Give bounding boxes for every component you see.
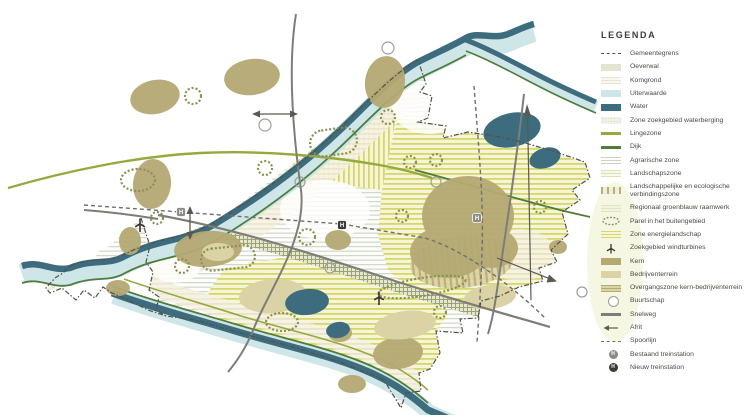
afrit-icon [601,324,621,332]
parel-buitengebied-icon [601,216,621,226]
zoekgebied-windturbines-swatch [601,245,621,252]
wind-turbine-icon [601,243,621,254]
zone-zoekgebied-waterberging-swatch [601,117,621,124]
bestaand-treinstation-icon: H [609,350,618,359]
legend-label: Bedrijventerrein [630,271,678,279]
legend-label: Dijk [630,143,641,151]
legend-label: Uiterwaarde [630,90,667,98]
snelweg-swatch [601,311,621,318]
uiterwaarde-swatch [601,90,621,97]
legend-label: Nieuw treinstation [630,364,684,372]
zone-energielandschap-swatch [601,231,621,238]
legend-label: Overgangszone kern-bedrijventerrein [630,284,742,292]
legend-item-afrit: Afrit [601,324,749,332]
bedrijventerrein-swatch [601,271,621,278]
legend-title: LEGENDA [601,30,749,40]
legend-item-bestaand-treinstation: HBestaand treinstation [601,351,749,359]
legend-item-landschapszone: Landschapszone [601,170,749,178]
dijk-swatch [601,144,621,151]
legend-item-water: Water [601,103,749,111]
legend-label: Komgrond [630,77,661,85]
legend-item-overgangszone-kern-bedrijventerrein: Overgangszone kern-bedrijventerrein [601,284,749,292]
svg-text:H: H [475,216,479,222]
legend-panel: LEGENDA GemeentegrensOeverwalKomgrondUit… [601,30,749,377]
legend-label: Snelweg [630,311,656,319]
legend-item-agrarische-zone: Agrarische zone [601,157,749,165]
svg-text:H: H [340,223,344,229]
legend-item-uiterwaarde: Uiterwaarde [601,90,749,98]
legend-item-oeverwal: Oeverwal [601,63,749,71]
kern-swatch [601,258,621,265]
afrit-swatch [601,324,621,331]
nieuw-treinstation-icon: H [609,363,618,372]
legend-label: Zone energielandschap [630,231,701,239]
legend-label: Water [630,103,648,111]
legend-label: Oeverwal [630,63,659,71]
legend-item-buurtschap: Buurtschap [601,297,749,305]
legend-label: Bestaand treinstation [630,351,694,359]
legend-item-zoekgebied-windturbines: Zoekgebied windturbines [601,244,749,252]
legend-item-bedrijventerrein: Bedrijventerrein [601,271,749,279]
legend-label: Zone zoekgebied waterberging [630,117,723,125]
parel-buitengebied-swatch [601,218,621,225]
legend-label: Agrarische zone [630,157,679,165]
snelweg-aanloop [84,210,158,219]
legend-label: Buurtschap [630,297,664,305]
legend-item-kern: Kern [601,258,749,266]
legend-label: Parel in het buitengebied [630,218,705,226]
legend-label: Lingezone [630,130,661,138]
existing-station-icon: H [177,208,186,217]
legend-label: Gemeentegrens [630,50,679,58]
verbindingszone-swatch [601,187,621,194]
gemeentegrens-swatch [601,50,621,57]
legend-label: Landschappelijke en ecologische verbindi… [630,183,749,199]
legend-label: Landschapszone [630,170,681,178]
legend-item-regionaal-groenblauw-raamwerk: Regionaal groenblauw raamwerk [601,204,749,212]
legend-label: Spoorlijn [630,337,656,345]
spoorlijn-swatch [601,338,621,345]
buurtschap-swatch [601,298,621,305]
komgrond-swatch [601,77,621,84]
agrarische-zone-swatch [601,157,621,164]
regionaal-groenblauw-raamwerk-swatch [601,205,621,212]
legend-item-parel-buitengebied: Parel in het buitengebied [601,218,749,226]
legend-item-gemeentegrens: Gemeentegrens [601,50,749,58]
legend-item-spoorlijn: Spoorlijn [601,337,749,345]
overgangszone-kern-bedrijventerrein-swatch [601,285,621,292]
legend-item-snelweg: Snelweg [601,311,749,319]
oeverwal-swatch [601,64,621,71]
legend-label: Afrit [630,324,642,332]
nieuw-treinstation-swatch: H [601,364,621,371]
legend-item-zone-energielandschap: Zone energielandschap [601,231,749,239]
river-north-branch [466,40,596,113]
new-station-icon: H [338,221,347,230]
legend-item-verbindingszone: Landschappelijke en ecologische verbindi… [601,183,749,199]
legend-label: Zoekgebied windturbines [630,244,706,252]
legend-label: Regionaal groenblauw raamwerk [630,204,729,212]
landschapszone-swatch [601,170,621,177]
existing-station-icon: H [473,214,482,223]
legend-label: Kern [630,258,644,266]
legend-item-lingezone: Lingezone [601,130,749,138]
legend-item-zone-zoekgebied-waterberging: Zone zoekgebied waterberging [601,117,749,125]
legend-item-komgrond: Komgrond [601,77,749,85]
svg-text:H: H [179,210,183,216]
legend-item-nieuw-treinstation: HNieuw treinstation [601,364,749,372]
water-swatch [601,104,621,111]
legend-item-dijk: Dijk [601,143,749,151]
bestaand-treinstation-swatch: H [601,351,621,358]
lingezone-swatch [601,130,621,137]
